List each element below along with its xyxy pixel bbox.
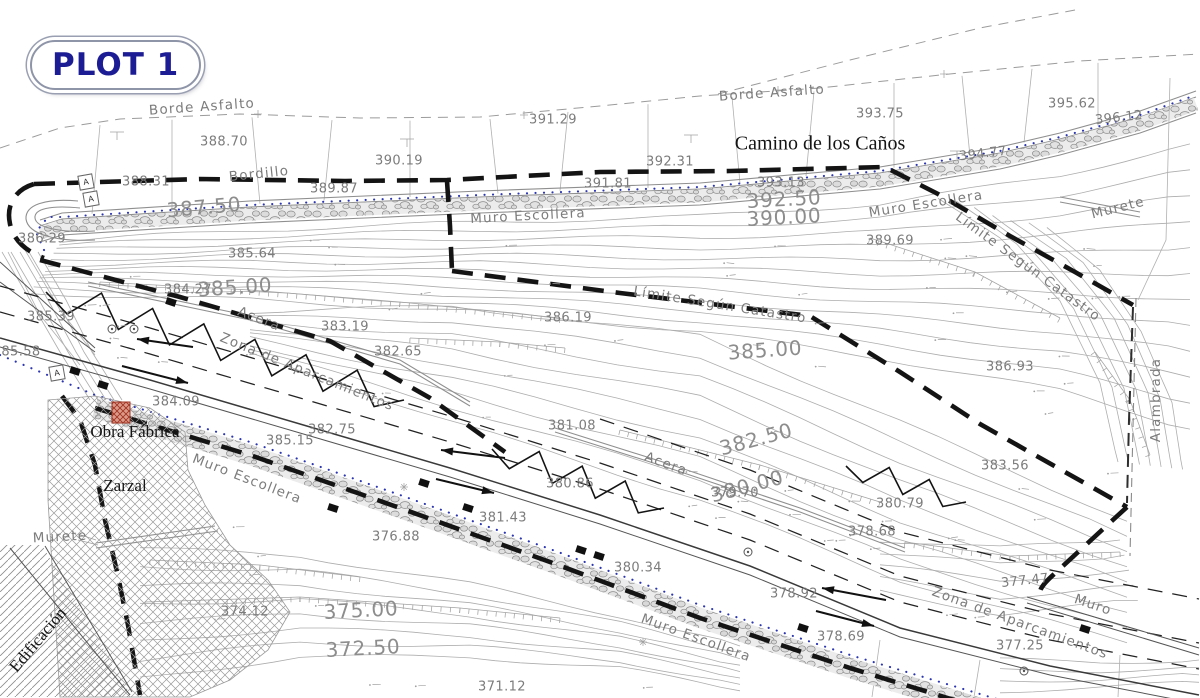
plot-title-badge: PLOT 1 [30, 40, 201, 90]
site-plan: Borde AsfaltoBorde AsfaltoCamino de los … [0, 0, 1200, 698]
plot-title: PLOT 1 [52, 47, 179, 83]
section-marker-a: A [82, 190, 99, 207]
section-marker-a: A [77, 173, 94, 190]
section-marker-a: A [48, 364, 65, 381]
plan-drawing [0, 0, 1200, 698]
